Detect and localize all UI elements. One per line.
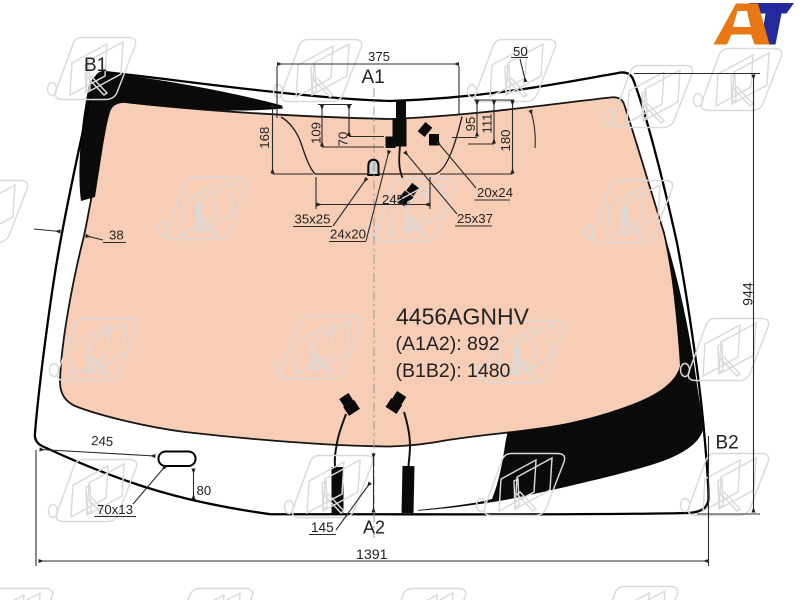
svg-text:A2: A2 — [363, 518, 385, 538]
svg-text:70x13: 70x13 — [97, 502, 133, 517]
svg-text:375: 375 — [368, 49, 390, 64]
svg-text:944: 944 — [740, 282, 756, 306]
svg-text:168: 168 — [257, 127, 272, 149]
svg-text:38: 38 — [109, 228, 124, 243]
svg-text:4456AGNHV: 4456AGNHV — [396, 304, 530, 330]
svg-text:35x25: 35x25 — [295, 212, 331, 227]
svg-text:25x37: 25x37 — [457, 211, 493, 226]
svg-text:24x20: 24x20 — [330, 227, 366, 242]
svg-text:B1: B1 — [84, 55, 107, 76]
svg-text:95: 95 — [463, 117, 478, 132]
svg-text:145: 145 — [311, 520, 334, 535]
svg-text:245: 245 — [382, 192, 404, 207]
svg-text:111: 111 — [480, 113, 495, 133]
svg-text:1391: 1391 — [356, 547, 388, 563]
svg-text:50: 50 — [513, 44, 528, 59]
svg-text:109: 109 — [308, 122, 323, 144]
svg-text:80: 80 — [197, 483, 212, 498]
svg-text:180: 180 — [498, 129, 513, 151]
svg-text:B2: B2 — [716, 433, 739, 454]
svg-text:70: 70 — [336, 132, 351, 147]
svg-text:(A1A2): 892: (A1A2): 892 — [396, 333, 500, 355]
svg-text:20x24: 20x24 — [477, 185, 513, 200]
svg-text:245: 245 — [91, 433, 114, 449]
svg-text:A1: A1 — [362, 67, 385, 88]
svg-text:(B1B2): 1480: (B1B2): 1480 — [396, 360, 511, 382]
